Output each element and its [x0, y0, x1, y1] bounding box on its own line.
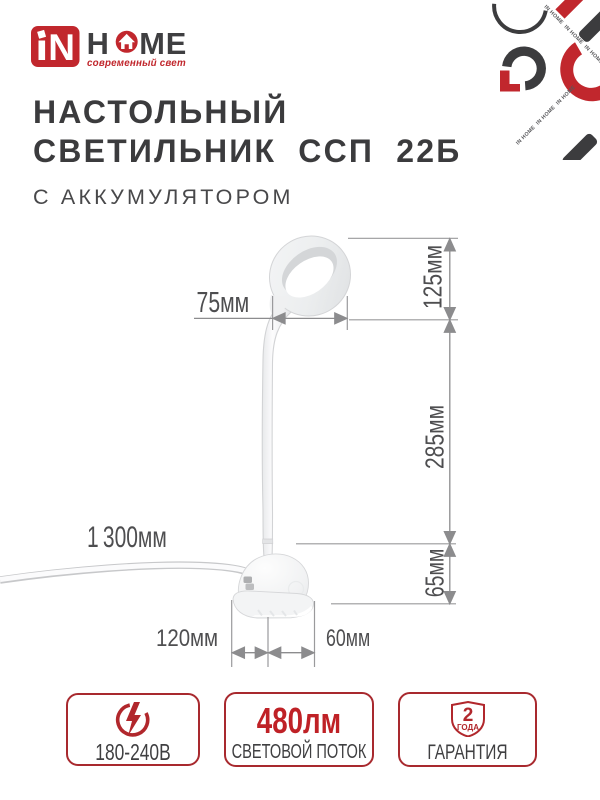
- svg-text:ГОДА: ГОДА: [456, 723, 478, 732]
